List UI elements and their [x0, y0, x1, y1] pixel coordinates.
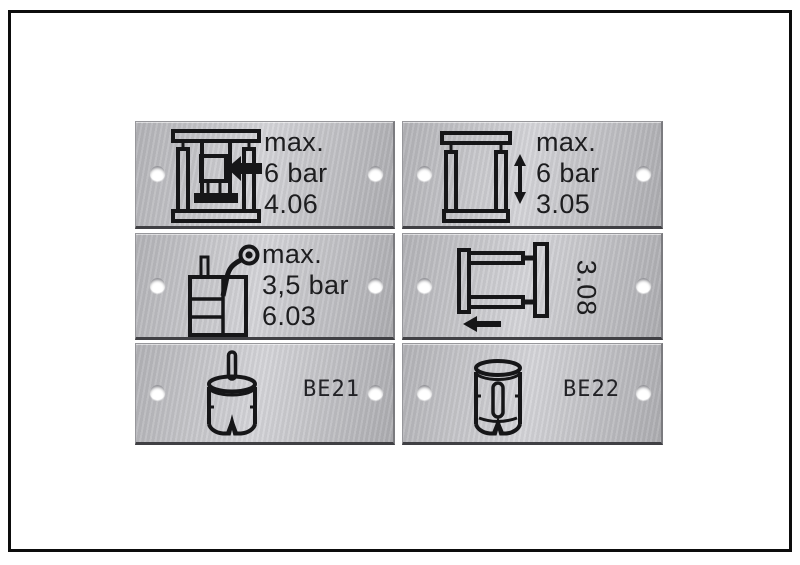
- label-plate-6-03: max.3,5 bar6.03: [135, 233, 395, 340]
- mounting-hole-icon: [368, 385, 383, 400]
- label-plate-3-05: max.6 bar3.05: [402, 121, 663, 229]
- label-plate-be21: BE21: [135, 343, 395, 445]
- mounting-hole-icon: [636, 385, 651, 400]
- plate-text: max.6 bar3.05: [536, 127, 600, 220]
- mounting-hole-icon: [150, 166, 165, 181]
- mounting-hole-icon: [417, 385, 432, 400]
- text-line: 3,5 bar: [262, 270, 349, 301]
- photo-border-frame: [8, 10, 792, 552]
- plate-code-text: BE21: [303, 377, 360, 402]
- plate-code-text: BE22: [563, 377, 620, 402]
- mounting-hole-icon: [150, 385, 165, 400]
- mounting-hole-icon: [417, 278, 432, 293]
- cup-cylinder-pin-icon: [469, 356, 527, 442]
- mounting-hole-icon: [417, 166, 432, 181]
- text-line: 3.05: [536, 189, 600, 220]
- text-line: 4.06: [264, 189, 328, 220]
- text-line: max.: [264, 127, 328, 158]
- rotated-code-text: 3.08: [571, 260, 602, 317]
- text-line: max.: [536, 127, 600, 158]
- plate-text: max.3,5 bar6.03: [262, 239, 349, 332]
- label-plate-3-08: 3.08: [402, 233, 663, 340]
- label-plate-4-06: max.6 bar4.06: [135, 121, 395, 229]
- mounting-hole-icon: [636, 278, 651, 293]
- text-line: 6 bar: [536, 158, 600, 189]
- vertical-clamp-stroke-icon: [434, 129, 526, 224]
- tank-with-pressure-gauge-icon: [186, 243, 264, 338]
- mounting-hole-icon: [368, 278, 383, 293]
- mounting-hole-icon: [636, 166, 651, 181]
- mounting-hole-icon: [368, 166, 383, 181]
- label-plate-be22: BE22: [402, 343, 663, 445]
- stamping-press-icon: [170, 127, 262, 224]
- text-line: 6 bar: [264, 158, 328, 189]
- text-line: max.: [262, 239, 349, 270]
- plate-text: max.6 bar4.06: [264, 127, 328, 220]
- bell-cylinder-rod-icon: [203, 350, 261, 442]
- text-line: 6.03: [262, 301, 349, 332]
- mounting-hole-icon: [150, 278, 165, 293]
- horizontal-clamp-arrow-icon: [455, 240, 553, 334]
